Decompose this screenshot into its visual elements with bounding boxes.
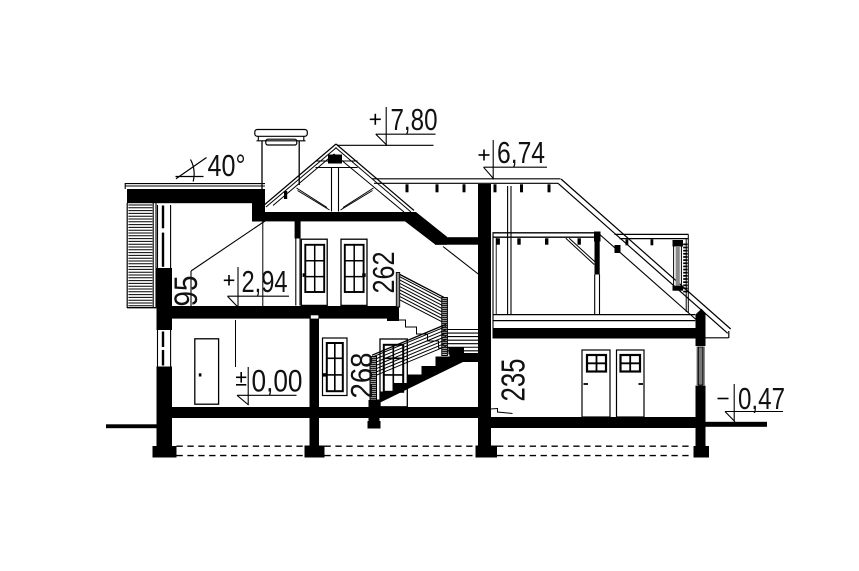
- svg-text:40°: 40°: [208, 148, 246, 183]
- svg-text:0,00: 0,00: [252, 363, 303, 399]
- svg-text:0,47: 0,47: [738, 381, 785, 416]
- svg-text:7,80: 7,80: [391, 102, 438, 137]
- svg-text:6,74: 6,74: [497, 135, 545, 170]
- svg-text:95: 95: [168, 276, 204, 307]
- svg-text:2,94: 2,94: [242, 264, 288, 299]
- svg-text:235: 235: [495, 359, 532, 402]
- svg-text:268: 268: [344, 353, 379, 399]
- svg-text:262: 262: [366, 252, 401, 294]
